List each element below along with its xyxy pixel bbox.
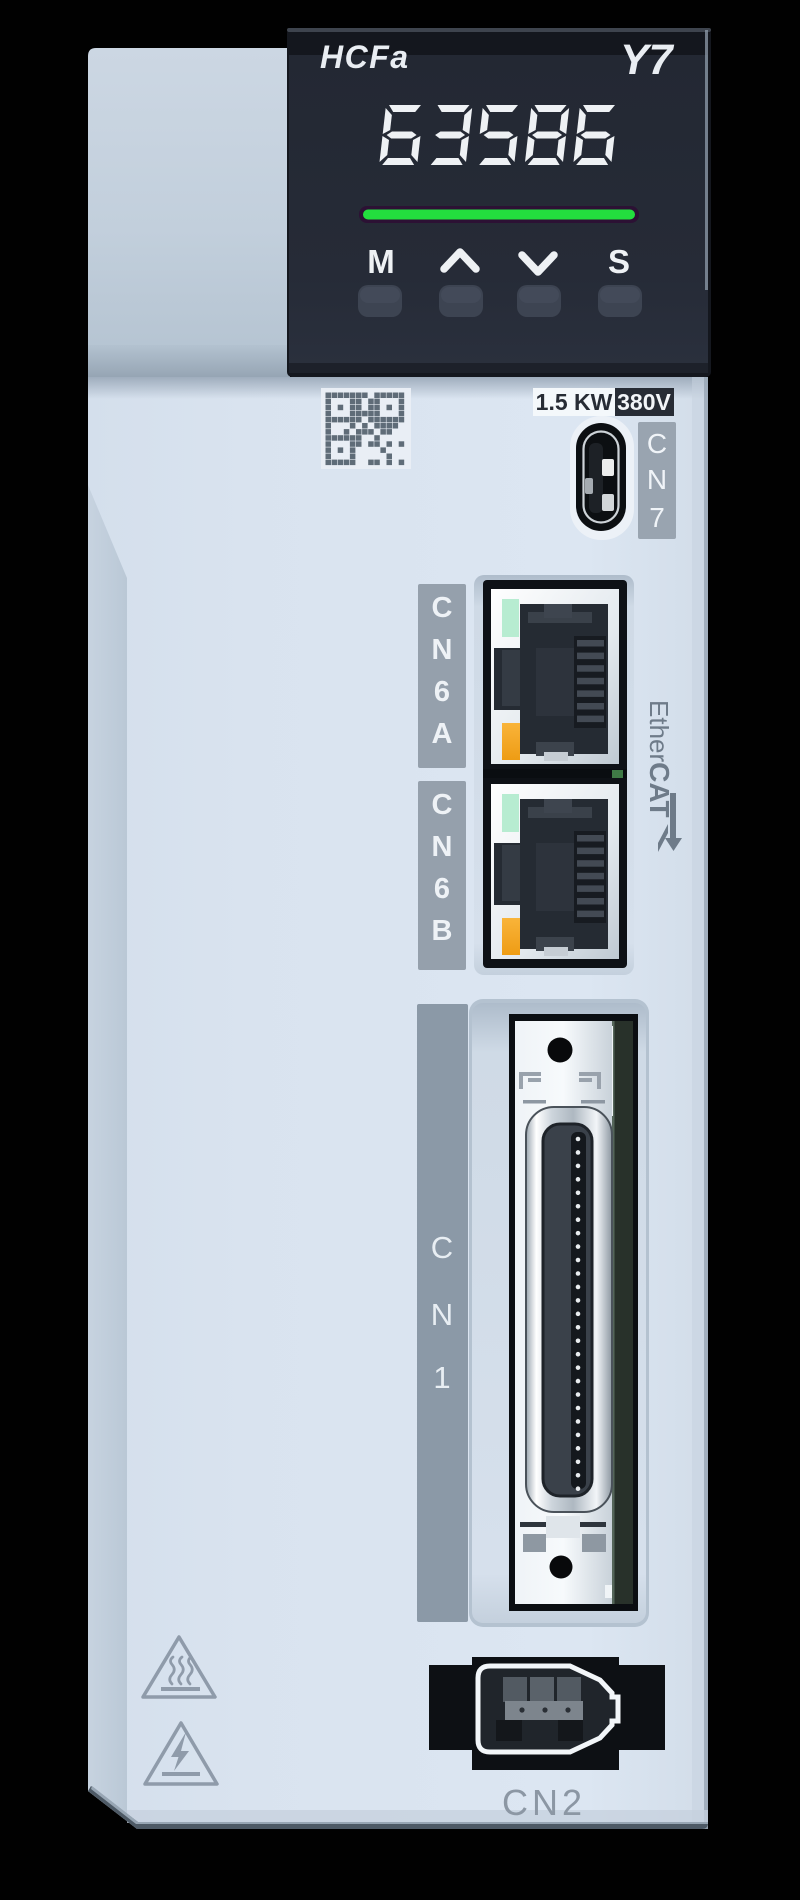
svg-text:C: C (432, 789, 453, 821)
svg-text:C: C (647, 428, 667, 459)
svg-text:6: 6 (434, 873, 450, 905)
svg-text:1.5 KW: 1.5 KW (536, 389, 613, 415)
svg-text:S: S (608, 243, 630, 280)
svg-text:Y7: Y7 (620, 36, 675, 84)
svg-text:7: 7 (649, 502, 665, 533)
svg-text:M: M (367, 243, 395, 280)
svg-text:B: B (432, 915, 453, 947)
svg-text:N: N (431, 1297, 453, 1332)
svg-text:380V: 380V (617, 389, 671, 415)
svg-text:A: A (432, 718, 453, 750)
svg-text:6: 6 (434, 676, 450, 708)
svg-text:N: N (432, 634, 453, 666)
svg-text:N: N (647, 464, 667, 495)
svg-text:N: N (432, 831, 453, 863)
svg-text:HCFa: HCFa (320, 39, 410, 75)
svg-text:CN2: CN2 (502, 1782, 586, 1823)
svg-text:C: C (431, 1230, 453, 1265)
svg-text:1: 1 (433, 1360, 450, 1395)
svg-text:C: C (432, 592, 453, 624)
